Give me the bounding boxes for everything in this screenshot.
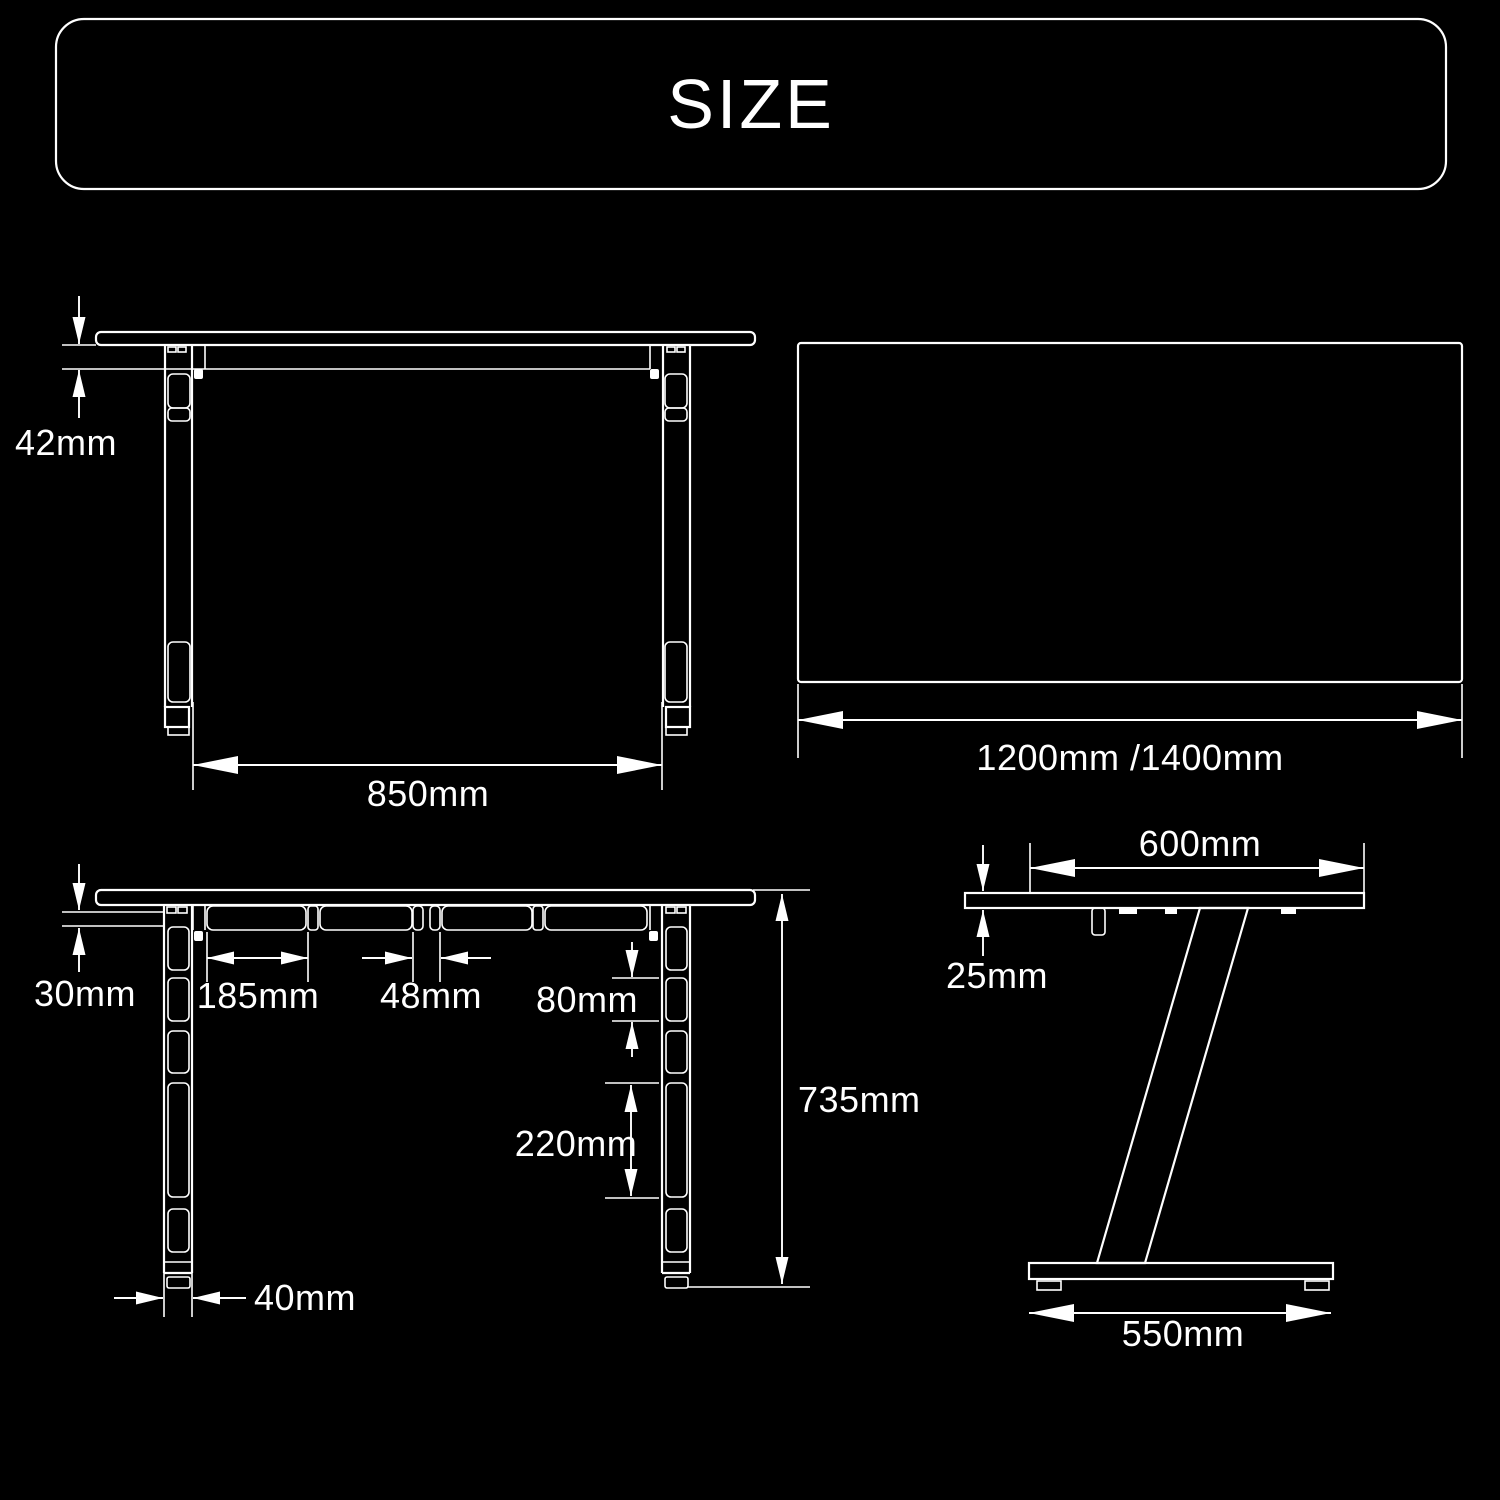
page-title: SIZE [667, 65, 835, 143]
right-leg [662, 906, 690, 1288]
front-detail-view-drawing: 30mm [34, 864, 921, 1318]
frame-rail [193, 906, 662, 941]
desktop-thickness-label: 25mm [946, 955, 1048, 996]
beam-segment-label: 185mm [197, 975, 320, 1016]
cable-hook [1092, 908, 1105, 935]
size-banner: SIZE [56, 19, 1446, 189]
left-leg [164, 906, 192, 1288]
center-support [430, 906, 440, 930]
tabletop-side [965, 893, 1364, 908]
dimension-desktop-width: 1200mm /1400mm [798, 684, 1462, 778]
dimension-lower-slot: 220mm [515, 1083, 659, 1198]
top-view-drawing: 1200mm /1400mm [798, 343, 1462, 778]
dimension-base-depth: 550mm [1029, 1313, 1331, 1354]
tabletop [96, 332, 755, 345]
dimension-desk-height: 735mm [687, 890, 921, 1287]
z-leg [1097, 908, 1248, 1263]
dimension-upper-slot: 80mm [536, 942, 659, 1057]
base-depth-label: 550mm [1122, 1313, 1245, 1354]
front-view-drawing: 42mm 850mm [15, 296, 755, 814]
left-leg [165, 346, 205, 735]
desk-size-spec-sheet: SIZE [0, 0, 1500, 1500]
mount-tab [1165, 908, 1177, 914]
leg-width-label: 40mm [254, 1277, 356, 1318]
tabletop [96, 890, 755, 905]
front-frame-thickness-label: 42mm [15, 422, 117, 463]
dimension-frame-thickness: 42mm [15, 296, 117, 463]
dimension-desktop-depth: 600mm [1030, 823, 1364, 892]
lower-slot-spacing-label: 220mm [515, 1123, 638, 1164]
base-foot [1029, 1263, 1333, 1290]
desk-height-label: 735mm [798, 1079, 921, 1120]
dimension-leg-inner-width: 850mm [193, 702, 662, 814]
side-view-drawing: 600mm 25mm 550mm [946, 823, 1364, 1354]
mount-tab [1119, 908, 1137, 914]
desktop-width-label: 1200mm /1400mm [976, 737, 1283, 778]
right-leg [650, 346, 690, 735]
center-support [413, 906, 423, 930]
leg-inner-width-label: 850mm [367, 773, 490, 814]
dimension-leg-width: 40mm [114, 1273, 356, 1318]
upper-slot-spacing-label: 80mm [536, 979, 638, 1020]
dimension-beam-segment: 185mm [197, 932, 320, 1016]
mount-tab [1281, 908, 1296, 914]
desktop-depth-label: 600mm [1139, 823, 1262, 864]
desk-dimension-diagram: SIZE [0, 0, 1500, 1500]
detail-frame-thickness-label: 30mm [34, 973, 136, 1014]
desktop-outline [798, 343, 1462, 682]
center-support-width-label: 48mm [380, 975, 482, 1016]
dimension-center-support: 48mm [362, 932, 491, 1016]
dimension-frame-thickness-detail: 30mm [34, 864, 136, 1014]
